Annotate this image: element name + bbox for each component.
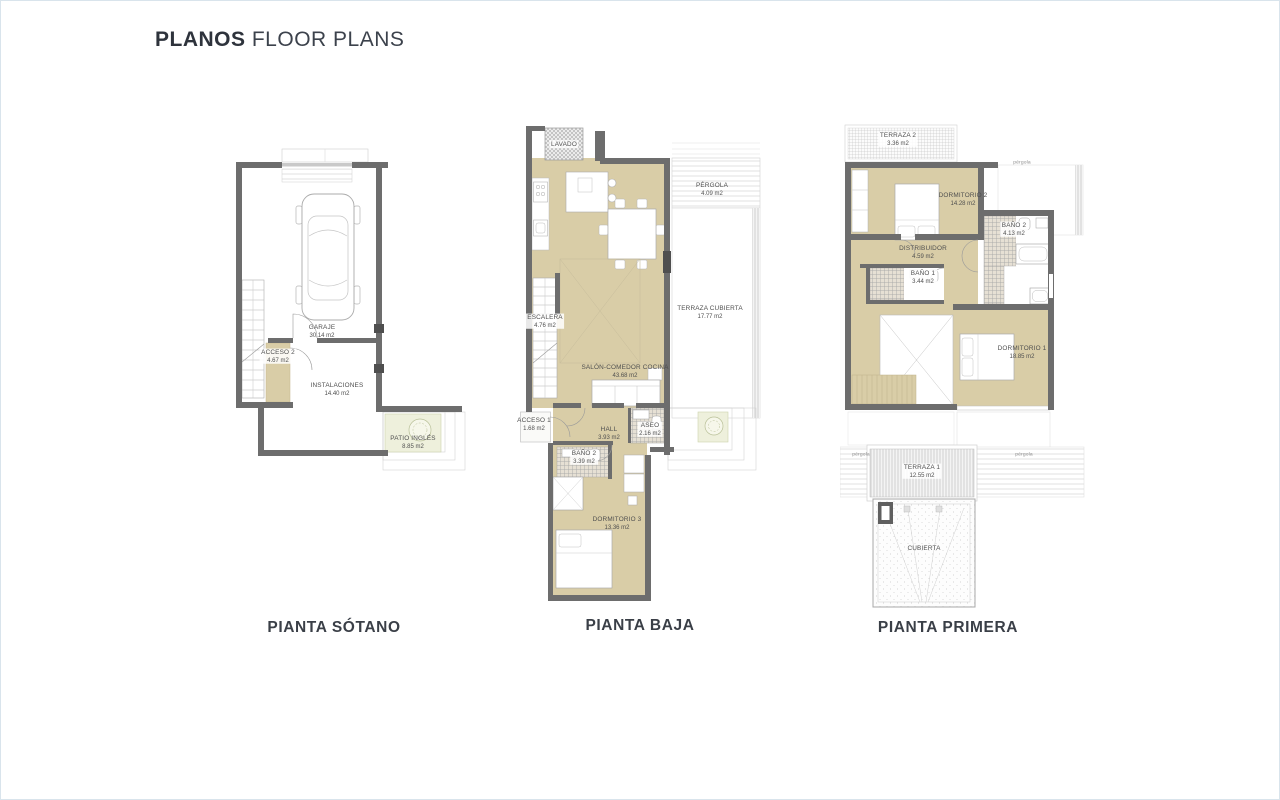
room-label-garaje: GARAJE30.14 m2 [309, 324, 336, 339]
room-label-pergola-right: pérgola [1015, 451, 1032, 457]
tree-icon [705, 417, 723, 435]
bed-icon [895, 184, 939, 240]
page-title-light: FLOOR PLANS [252, 28, 405, 51]
bed-icon [556, 530, 612, 588]
room-label-acceso1: ACCESO 11.68 m2 [517, 417, 551, 432]
sink-icon [534, 220, 548, 236]
room-label-bano2-p1: BAÑO 24.13 m2 [1000, 222, 1028, 237]
sink-icon [1036, 218, 1048, 228]
room-label-terraza1: TERRAZA 112.55 m2 [902, 464, 942, 479]
stairs-icon [533, 278, 557, 398]
room-label-escalera: ESCALERA4.76 m2 [526, 314, 565, 329]
chimney-icon [878, 502, 893, 524]
closet-icon [852, 170, 868, 232]
room-label-cubierta: CUBIERTA [907, 544, 940, 552]
room-label-bano2: BAÑO 23.39 m2 [570, 450, 598, 465]
floorplan-sotano: GARAJE30.14 m2 ACCESO 24.67 m2 INSTALACI… [230, 148, 480, 483]
plan-caption-primera: PIANTA PRIMERA [838, 619, 1058, 637]
room-label-salon-comedor: SALÓN-COMEDOR COCINA43.68 m2 [581, 364, 668, 379]
room-label-pergola: PÉRGOLA4.09 m2 [696, 182, 728, 197]
plan-caption-baja: PIANTA BAJA [530, 617, 750, 635]
stairs-icon [242, 280, 264, 398]
room-label-terraza-cubierta: TERRAZA CUBIERTA17.77 m2 [677, 305, 743, 320]
page-title: PLANOS FLOOR PLANS [155, 28, 404, 52]
room-label-terraza2: TERRAZA 23.36 m2 [878, 132, 918, 147]
room-label-bano1: BAÑO 13.44 m2 [909, 270, 937, 285]
stove-icon [534, 182, 548, 202]
floor-plans-page: PLANOS FLOOR PLANS [0, 0, 1280, 800]
room-label-patio-ingles: PATIO INGLÉS8.85 m2 [390, 435, 435, 450]
room-label-aseo: ASEO2.16 m2 [638, 422, 663, 437]
cubierta-roof [873, 499, 975, 607]
room-label-lavado: LAVADO [549, 140, 578, 148]
page-title-bold: PLANOS [155, 28, 246, 51]
car-icon [296, 194, 360, 320]
floorplan-primera: TERRAZA 23.36 m2 pérgola DORMITORIO 214.… [840, 118, 1088, 610]
washer-icon [628, 496, 637, 505]
room-label-pergola-left: pérgola [852, 451, 869, 457]
bathtub-icon [1016, 244, 1050, 264]
plan-caption-sotano: PIANTA SÓTANO [224, 619, 444, 637]
room-label-dormitorio2: DORMITORIO 214.28 m2 [939, 192, 988, 207]
room-label-distribuidor: DISTRIBUIDOR4.59 m2 [899, 245, 947, 260]
room-label-instalaciones: INSTALACIONES14.40 m2 [311, 382, 364, 397]
room-label-dormitorio1: DORMITORIO 118.85 m2 [998, 345, 1047, 360]
kitchen-counter [532, 178, 549, 250]
room-label-acceso2: ACCESO 24.67 m2 [260, 349, 297, 364]
floorplan-baja: LAVADO PÉRGOLA4.09 m2 TERRAZA CUBIERTA17… [520, 125, 765, 607]
bathtub-icon [1030, 288, 1050, 304]
shower-icon [553, 477, 583, 510]
shower-icon [984, 266, 1004, 304]
room-label-dormitorio3: DORMITORIO 313.36 m2 [593, 516, 642, 531]
sink-icon [633, 410, 649, 419]
room-label-pergola-top: pérgola [1013, 159, 1030, 165]
dining-table-icon [599, 199, 665, 269]
floorplan-sotano-drawing [230, 148, 480, 483]
room-label-hall: HALL3.93 m2 [598, 426, 620, 441]
stairs-icon [852, 375, 916, 404]
